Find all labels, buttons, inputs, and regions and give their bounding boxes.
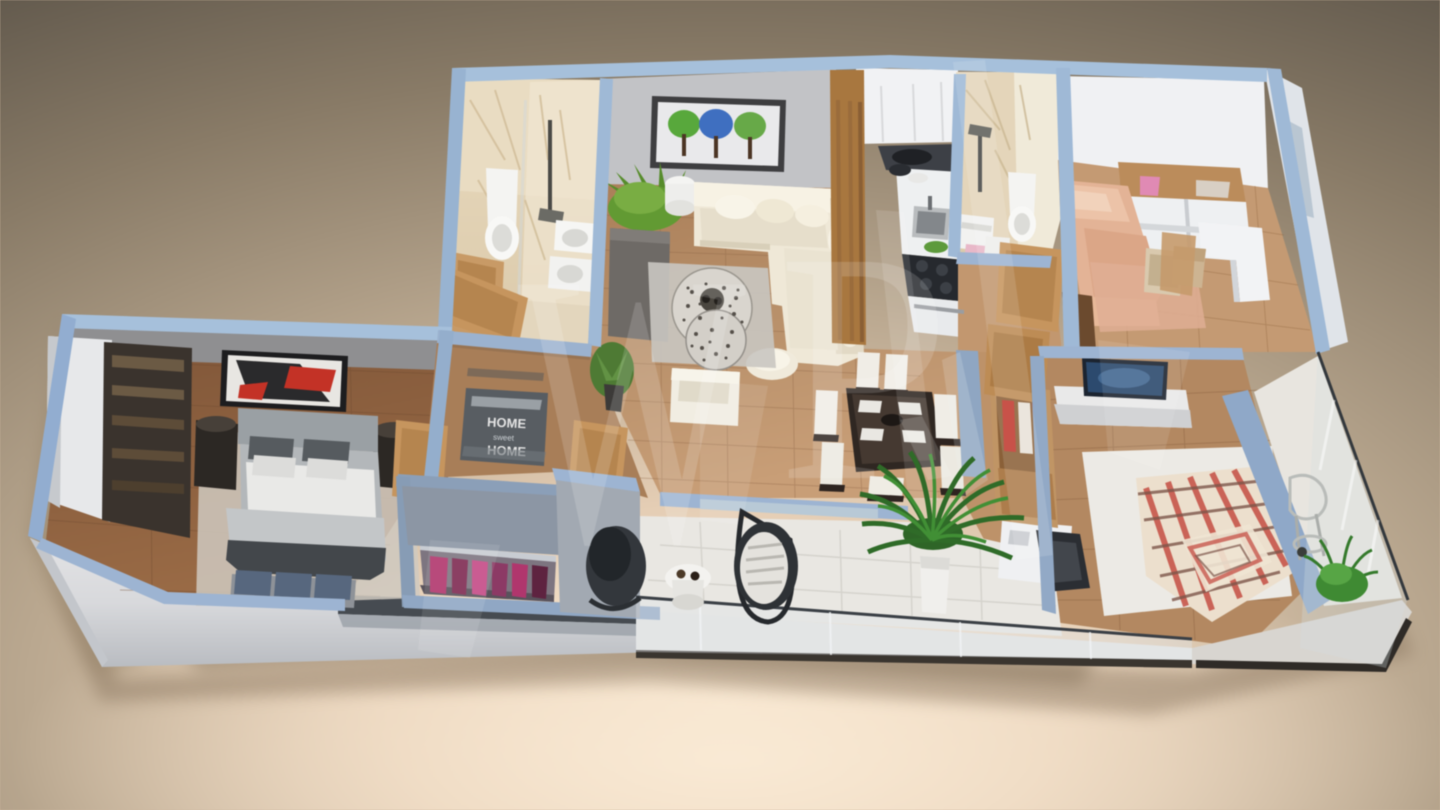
svg-text:sweet: sweet (493, 433, 515, 443)
svg-text:W: W (518, 193, 748, 625)
svg-text:P: P (778, 185, 950, 550)
